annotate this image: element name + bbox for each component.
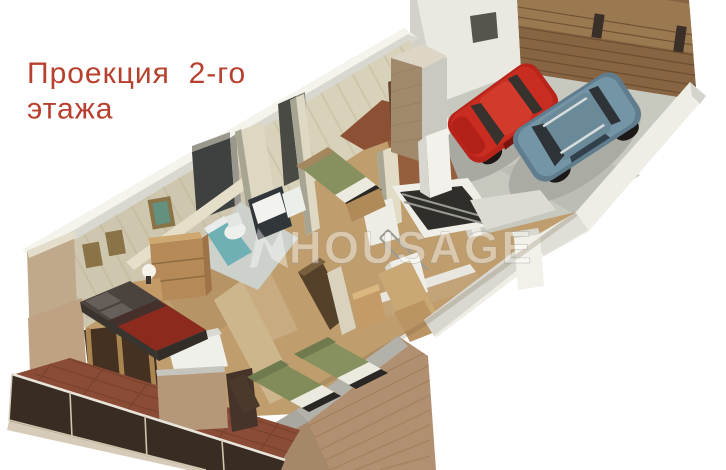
svg-text:этажа: этажа [27, 93, 114, 126]
svg-text:HOUSAGE: HOUSAGE [289, 222, 534, 273]
svg-text:Проекция 2-го: Проекция 2-го [27, 57, 246, 90]
